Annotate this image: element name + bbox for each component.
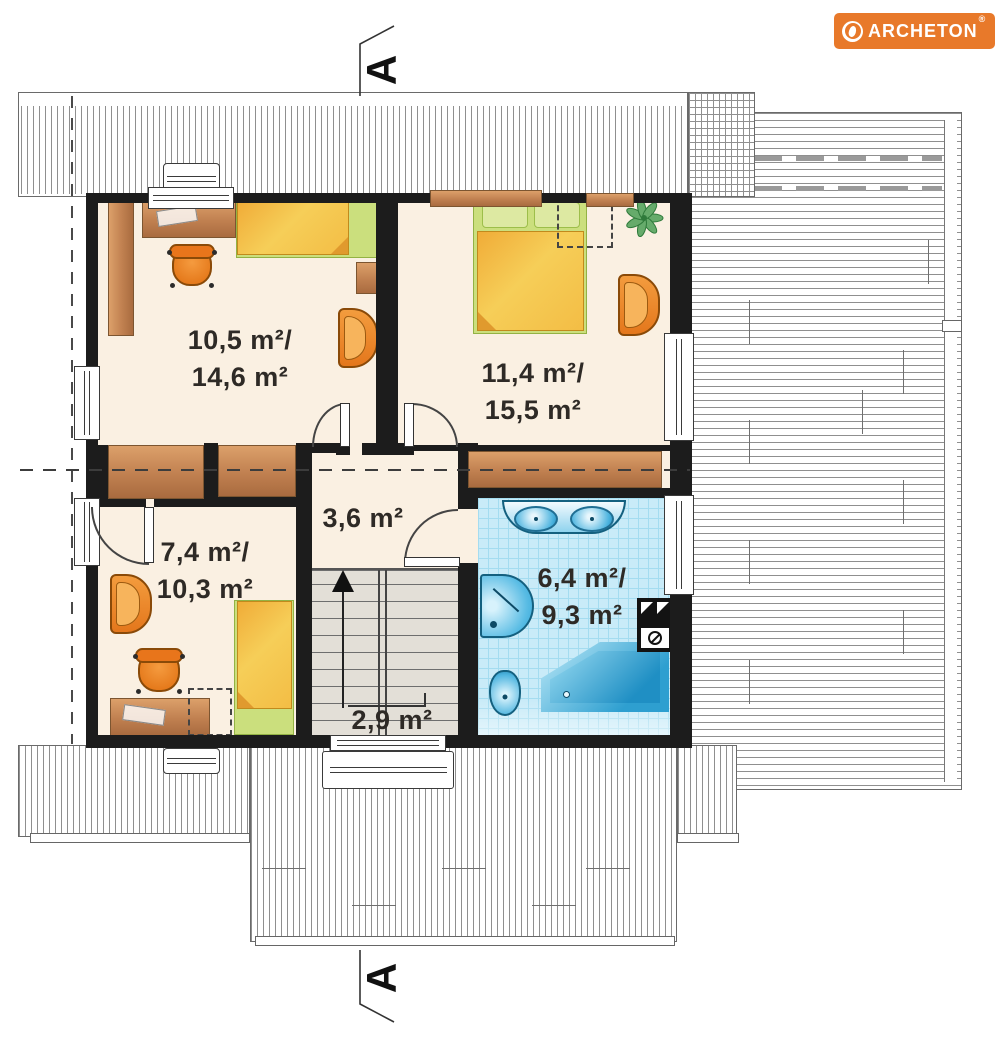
registered-mark: ® [979, 14, 987, 24]
room-area-line2: 10,3 m² [157, 571, 254, 608]
window [664, 495, 694, 595]
room-area-line1: 10,5 m²/ [188, 322, 293, 359]
roof-tick [586, 868, 630, 869]
terrace-right-margin [944, 120, 957, 782]
shaft-symbol [657, 602, 669, 614]
door-leaf [144, 507, 154, 563]
room-area-line1: 3,6 m² [322, 500, 403, 537]
archeton-logo-icon [842, 21, 863, 42]
built-in-wardrobe [108, 445, 204, 499]
archeton-brand-text: ARCHETON® [868, 22, 985, 40]
roof-step-outline [255, 936, 675, 946]
roof-eave-bottom-right [677, 745, 737, 837]
office-chair-back [135, 648, 183, 663]
room-area-line2: 15,5 m² [481, 392, 584, 429]
chair-caster [177, 689, 182, 694]
bed-single [236, 198, 378, 258]
brand-name: ARCHETON [868, 21, 978, 41]
window [74, 366, 100, 440]
roof-window-lintel [586, 193, 634, 207]
roof-tick [749, 420, 750, 464]
door-leaf [340, 403, 350, 447]
roof-tick [903, 350, 904, 394]
wall-hall-bathroom [458, 563, 478, 740]
nightstand [356, 262, 378, 294]
roof-tick [749, 300, 750, 344]
bed-single [234, 600, 294, 735]
staircase-up-arrow [332, 570, 354, 592]
roof-edge-dashed-line [71, 96, 73, 744]
wall-between-bedrooms [376, 193, 398, 449]
desk-papers [122, 704, 166, 726]
room-area-line1: 6,4 m²/ [537, 560, 626, 597]
roof-eave-top [18, 92, 688, 197]
bathroom-vanity [502, 500, 626, 534]
window-glazing [84, 502, 90, 561]
dormer-dashed-outline [188, 688, 232, 736]
wall-exterior-right [670, 595, 692, 745]
shower-drain [490, 621, 497, 628]
office-chair [138, 650, 180, 692]
room-area-label: 6,4 m²/ 9,3 m² [537, 560, 626, 634]
ventilation-shaft [637, 598, 673, 652]
wall-stub [204, 443, 218, 501]
toilet-drain [503, 695, 508, 700]
bathtub-drain [563, 691, 570, 698]
roof-eave-top-overlap [688, 92, 755, 197]
shaft-symbol-triangle [641, 602, 653, 614]
wall-exterior-bottom [446, 735, 692, 748]
room-area-label: 11,4 m²/ 15,5 m² [481, 355, 584, 429]
shower-arm [493, 588, 520, 612]
room-area-line2: 14,6 m² [188, 359, 293, 396]
roof-tick [862, 390, 863, 434]
bed-cover-fold [478, 312, 496, 330]
roof-tick [903, 610, 904, 654]
roof-step-outline [677, 833, 739, 843]
window [148, 187, 234, 209]
chimney-symbol-diagonal [651, 633, 661, 643]
wall-exterior-left [86, 566, 98, 745]
chair-caster [170, 283, 175, 288]
plant-center [641, 215, 647, 221]
roof-tick [903, 480, 904, 524]
bed-cover [237, 601, 292, 709]
wall-bedroom3-stairs [296, 443, 312, 740]
room-area-label: 7,4 m²/ 10,3 m² [157, 534, 254, 608]
archeton-logo: ARCHETON® [834, 13, 995, 49]
roof-terrace-right [690, 112, 962, 790]
door-leaf [404, 403, 414, 447]
section-marker-letter: A [358, 963, 405, 993]
office-chair-back [169, 244, 215, 259]
floor-plan-page: 10,5 m²/ 14,6 m² 11,4 m²/ 15,5 m² 7,4 m²… [0, 0, 995, 1042]
roof-tick [749, 660, 750, 704]
wardrobe [108, 196, 134, 336]
armchair [618, 274, 660, 336]
built-in-wardrobe [218, 445, 296, 497]
roof-eave-top-hatch [21, 106, 685, 194]
skylight-glazing [167, 758, 217, 764]
wall-bathroom-top [458, 488, 672, 498]
wall-exterior-right [670, 441, 692, 495]
room-area-line1: 11,4 m²/ [481, 355, 584, 392]
terrace-connector [942, 320, 962, 332]
room-area-label: 2,9 m² [351, 702, 432, 739]
bed-cover-fold [331, 237, 348, 254]
room-area-line2: 9,3 m² [537, 597, 626, 634]
office-chair [172, 246, 212, 286]
armchair-seat [116, 582, 140, 626]
dormer-window-glazing [330, 767, 447, 773]
room-area-line1: 2,9 m² [351, 702, 432, 739]
roof-tick [749, 540, 750, 584]
shaft-symbol [641, 602, 653, 614]
chair-caster [180, 654, 185, 659]
skylight-glazing [167, 176, 217, 182]
roof-step-outline [30, 833, 250, 843]
washbasin [514, 506, 558, 532]
window-glazing [676, 501, 682, 589]
roof-tick [928, 240, 929, 284]
chair-caster [212, 250, 217, 255]
roof-tick [352, 905, 396, 906]
roof-tick [442, 868, 486, 869]
window-glazing [337, 740, 440, 746]
room-area-label: 3,6 m² [322, 500, 403, 537]
washbasin [570, 506, 614, 532]
chimney-symbol-circle [648, 631, 662, 645]
roof-tick [262, 868, 306, 869]
window-glazing [153, 195, 229, 201]
chair-caster [133, 654, 138, 659]
section-marker-bottom: A [330, 948, 420, 1028]
roof-window-lintel [430, 190, 542, 207]
sink-drain [534, 517, 538, 521]
bed-cover [237, 202, 349, 255]
sink-drain [590, 517, 594, 521]
section-marker-letter: A [358, 55, 405, 85]
chair-caster [167, 250, 172, 255]
wall-stub [86, 445, 108, 505]
armchair-seat [624, 282, 648, 328]
roof-dormer-bottom [250, 745, 677, 942]
room-area-line1: 7,4 m²/ [157, 534, 254, 571]
section-marker-top: A [330, 18, 420, 98]
wall-exterior-left [86, 193, 98, 366]
wall-exterior-right [670, 193, 692, 333]
wall-exterior-bottom [86, 735, 330, 748]
chair-caster [136, 689, 141, 694]
shaft-symbol-triangle [657, 602, 669, 614]
door-leaf [404, 557, 460, 567]
chair-caster [209, 283, 214, 288]
room-area-label: 10,5 m²/ 14,6 m² [188, 322, 293, 396]
bed-cover-fold [238, 692, 254, 708]
roof-tick [532, 905, 576, 906]
staircase-arrow-stem [342, 590, 344, 708]
toilet [489, 670, 521, 716]
section-cut-line [20, 469, 690, 471]
chimney-symbol [641, 628, 669, 648]
skylight-window [163, 748, 220, 774]
window-glazing [676, 339, 682, 434]
window-glazing [84, 371, 90, 436]
armchair-seat [344, 316, 366, 360]
window [664, 333, 694, 441]
dormer-window [322, 751, 454, 789]
